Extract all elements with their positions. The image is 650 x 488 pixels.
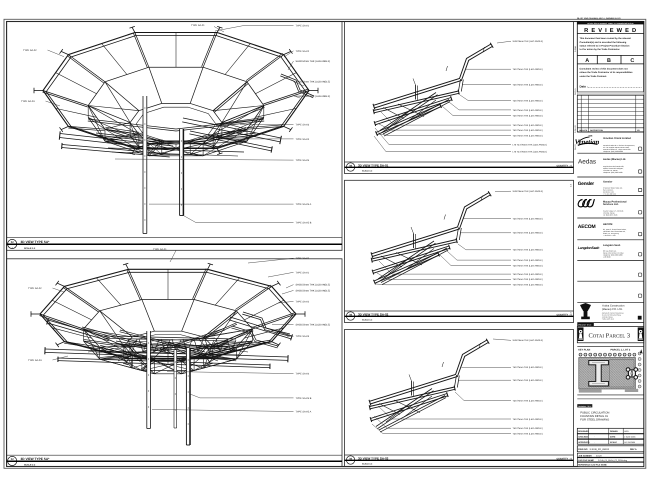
svg-text:1-AUG-2016: 1-AUG-2016 <box>624 435 636 438</box>
svg-text:TYPE SA-02: TYPE SA-02 <box>28 287 42 290</box>
svg-text:SHS/75mm THK (L&G ANGLE): SHS/75mm THK (L&G ANGLE) <box>513 40 544 43</box>
svg-text:T&T/75mm THK (L&G ANGLE): T&T/75mm THK (L&G ANGLE) <box>513 284 543 287</box>
svg-text:This document has been revised: This document has been revised by the re… <box>580 37 632 40</box>
svg-text:S&T-01: S&T-01 <box>574 87 577 95</box>
svg-text:DRAWING TITLE: DRAWING TITLE <box>578 405 592 408</box>
svg-text:3-SUB_FD_85494_P3_3D3M.dwg: 3-SUB_FD_85494_P3_3D3M.dwg <box>598 459 627 462</box>
svg-text:3D VIEW TYPE SA*: 3D VIEW TYPE SA* <box>21 457 51 461</box>
svg-text:TYPE SA-02: TYPE SA-02 <box>296 300 310 303</box>
svg-text:T&T/75mm THK (L&G ANGLE): T&T/75mm THK (L&G ANGLE) <box>513 259 543 262</box>
svg-text:TYPE SA-01: TYPE SA-01 <box>296 271 310 274</box>
svg-text:AECOM: AECOM <box>578 224 596 230</box>
svg-text:TYPE SA-02: TYPE SA-02 <box>296 257 310 260</box>
svg-text:3D VIEW TYPE SA-03: 3D VIEW TYPE SA-03 <box>358 457 389 461</box>
svg-text:TYPE SA-03: TYPE SA-03 <box>21 100 35 103</box>
svg-text:B: B <box>607 58 611 64</box>
svg-text:FOUNTAIN DETAIL 01: FOUNTAIN DETAIL 01 <box>580 415 608 418</box>
svg-text:SHS/75mm THK (L&G ANGLE): SHS/75mm THK (L&G ANGLE) <box>513 339 544 342</box>
svg-text:T&T/75mm THK (L&G ANGLE): T&T/75mm THK (L&G ANGLE) <box>513 134 543 137</box>
svg-text:QUANTITY : 4: QUANTITY : 4 <box>556 165 572 168</box>
svg-text:QUANTITY : 4: QUANTITY : 4 <box>556 458 572 461</box>
svg-text:T&T/75mm THK (L&G ANGLE): T&T/75mm THK (L&G ANGLE) <box>513 427 543 430</box>
svg-text:under the Trade Contract.: under the Trade Contract. <box>580 75 608 78</box>
svg-text:REV A: REV A <box>630 448 637 451</box>
svg-text:DESIGNED: DESIGNED <box>578 430 589 433</box>
svg-text:T&T/75mm THK (L&G ANGLE): T&T/75mm THK (L&G ANGLE) <box>513 217 543 220</box>
svg-text:TYPE SA-04: TYPE SA-04 <box>296 373 310 376</box>
svg-text:CHECKED: CHECKED <box>578 435 588 438</box>
svg-text:SHS/150mm THK (L&G ANGLE): SHS/150mm THK (L&G ANGLE) <box>296 95 331 98</box>
svg-text:Aedas: Aedas <box>578 159 596 166</box>
svg-text:Date :: Date : <box>580 84 588 88</box>
svg-text:5.4 for action by the Trade Co: 5.4 for action by the Trade Contractor. <box>580 48 621 51</box>
svg-text:T&T/75mm THK (L&G ANGLE): T&T/75mm THK (L&G ANGLE) <box>513 83 543 86</box>
svg-text:TYPE SA-05: TYPE SA-05 <box>296 159 310 162</box>
svg-text:R E V I E W E D: R E V I E W E D <box>584 28 637 34</box>
svg-text:Langdon Seah: Langdon Seah <box>603 244 621 247</box>
svg-text:SCALE: SCALE <box>610 441 617 444</box>
svg-text:TYPE SA-03: TYPE SA-03 <box>296 123 310 126</box>
svg-text:T&T/75mm THK (L&G ANGLE): T&T/75mm THK (L&G ANGLE) <box>513 418 543 421</box>
svg-text:SHS/150mm THK (L&G ANGLE): SHS/150mm THK (L&G ANGLE) <box>296 323 331 326</box>
svg-text:LWO: LWO <box>624 430 629 433</box>
svg-text:TYPE SA-01: TYPE SA-01 <box>296 24 310 27</box>
svg-text:31528: 31528 <box>596 454 602 457</box>
svg-text:L75 T&T/75mm THK (L&G ANGLE): L75 T&T/75mm THK (L&G ANGLE) <box>513 151 548 154</box>
svg-text:KEY PLAN: KEY PLAN <box>578 349 590 352</box>
svg-text:3D VIEW TYPE SA*: 3D VIEW TYPE SA* <box>21 240 51 244</box>
svg-text:T&T/75mm THK (L&G ANGLE): T&T/75mm THK (L&G ANGLE) <box>513 379 543 382</box>
svg-text:AS SHOWN: AS SHOWN <box>624 441 635 444</box>
svg-text:A: A <box>585 58 589 64</box>
svg-text:DATE: DATE <box>582 129 588 132</box>
svg-text:3D VIEW TYPE SA-02: 3D VIEW TYPE SA-02 <box>358 313 389 317</box>
svg-text:(Macau) CO. LTD.: (Macau) CO. LTD. <box>602 308 623 311</box>
svg-text:TYPE SA-01: TYPE SA-01 <box>153 248 167 251</box>
svg-text:T&T/75mm THK (L&G ANGLE): T&T/75mm THK (L&G ANGLE) <box>513 366 543 369</box>
svg-text:DESCRIPTION: DESCRIPTION <box>590 129 604 132</box>
svg-text:T&T/75mm THK (L&G ANGLE): T&T/75mm THK (L&G ANGLE) <box>513 115 543 118</box>
svg-text:Services Ltd.: Services Ltd. <box>603 203 619 206</box>
svg-text:PUBLIC CIRCULATION: PUBLIC CIRCULATION <box>580 411 609 414</box>
svg-text:3D VIEW TYPE SA-01: 3D VIEW TYPE SA-01 <box>358 164 389 168</box>
svg-text:T&T/75mm THK (L&G ANGLE): T&T/75mm THK (L&G ANGLE) <box>513 68 543 71</box>
svg-text:Consultant review of this docu: Consultant review of this document does … <box>580 68 628 71</box>
svg-text:SCALE 1:2: SCALE 1:2 <box>24 464 36 467</box>
svg-text:SCALE 1:2: SCALE 1:2 <box>362 170 373 173</box>
svg-text:SHS/150mm THK (L&G ANGLE): SHS/150mm THK (L&G ANGLE) <box>296 60 331 63</box>
svg-text:T&T/75mm THK (L&G ANGLE): T&T/75mm THK (L&G ANGLE) <box>513 99 543 102</box>
svg-text:S-FAB: S-FAB <box>574 46 577 52</box>
svg-text:COTAI PARCEL 3: COTAI PARCEL 3 <box>589 332 631 339</box>
svg-text:DATE: DATE <box>610 435 616 438</box>
svg-text:T&T/75mm THK (L&G ANGLE): T&T/75mm THK (L&G ANGLE) <box>513 399 543 402</box>
svg-text:Consultant(s) and is accorded: Consultant(s) and is accorded the follow… <box>580 41 627 44</box>
svg-text:TYPE SA-05 B: TYPE SA-05 B <box>296 397 312 400</box>
svg-text:Venetian Orient Limited: Venetian Orient Limited <box>603 137 631 140</box>
svg-text:TYPE SA-02: TYPE SA-02 <box>296 50 310 53</box>
svg-text:28 APT 5342 (PHARMA) 4957 A; 3: 28 APT 5342 (PHARMA) 4957 A; 34034856 IN… <box>577 17 620 20</box>
svg-text:TYPE SA-05 A: TYPE SA-05 A <box>296 411 312 414</box>
svg-text:FOR STEEL DRAWING: FOR STEEL DRAWING <box>580 419 609 422</box>
svg-text:relieve the Trade Contractor o: relieve the Trade Contractor of its resp… <box>580 71 634 74</box>
svg-text:SCALE 1:2: SCALE 1:2 <box>362 319 373 322</box>
svg-text:TYPE SA-03: TYPE SA-03 <box>296 335 310 338</box>
svg-text:PROJECT TITLE: PROJECT TITLE <box>578 324 592 327</box>
svg-text:3-SUB_FD_85494: 3-SUB_FD_85494 <box>590 448 610 451</box>
svg-text:T&T/75mm THK (L&G ANGLE): T&T/75mm THK (L&G ANGLE) <box>513 129 543 132</box>
svg-text:TYPE SA-01: TYPE SA-01 <box>191 24 205 27</box>
svg-text:T&T/75mm THK (L&G ANGLE): T&T/75mm THK (L&G ANGLE) <box>513 109 543 112</box>
svg-text:L75 T&T/75mm THK (L&G ANGLE): L75 T&T/75mm THK (L&G ANGLE) <box>513 144 548 147</box>
svg-text:DRAWN: DRAWN <box>610 430 618 433</box>
svg-text:Gensler: Gensler <box>603 181 612 184</box>
svg-text:T&T/75mm THK (L&G ANGLE): T&T/75mm THK (L&G ANGLE) <box>513 124 543 127</box>
svg-text:Gensler: Gensler <box>578 181 594 187</box>
svg-text:TYPE SA-05 B: TYPE SA-05 B <box>296 222 312 225</box>
svg-text:REFERENCE CAD FILE NAME: REFERENCE CAD FILE NAME <box>578 464 607 467</box>
svg-text:♥♠♣: ♥♠♣ <box>589 135 593 138</box>
svg-text:SHS/150mm THK (L&G ANGLE): SHS/150mm THK (L&G ANGLE) <box>296 289 331 292</box>
svg-text:S-SH-02: S-SH-02 <box>574 124 577 133</box>
svg-text:C: C <box>630 58 634 64</box>
svg-text:APPROVED: APPROVED <box>578 441 590 444</box>
svg-text:status referred to in Project: status referred to in Project Procedure … <box>580 44 631 47</box>
svg-text:SHS/75mm THK (L&G ANGLE): SHS/75mm THK (L&G ANGLE) <box>513 190 544 193</box>
svg-text:SCALE 1:2: SCALE 1:2 <box>362 463 373 466</box>
svg-text:SCALE 1:2: SCALE 1:2 <box>24 247 36 250</box>
svg-text:TYPE SA-04: TYPE SA-04 <box>296 138 310 141</box>
svg-text:Aedas (Macau) Ltd.: Aedas (Macau) Ltd. <box>603 158 626 161</box>
svg-text:AECOM: AECOM <box>603 223 612 226</box>
svg-text:JOB NUMBER: JOB NUMBER <box>578 454 592 457</box>
svg-text:SHS/150mm THK (L&G ANGLE): SHS/150mm THK (L&G ANGLE) <box>296 284 331 287</box>
svg-text:T&T/75mm THK (L&G ANGLE): T&T/75mm THK (L&G ANGLE) <box>513 273 543 276</box>
svg-text:TYPE SA-05 A: TYPE SA-05 A <box>296 203 312 206</box>
svg-text:CAD FILE NAME: CAD FILE NAME <box>578 459 594 462</box>
svg-text:T&T/75mm THK (L&G ANGLE): T&T/75mm THK (L&G ANGLE) <box>513 249 543 252</box>
svg-text:TYPE SA-03: TYPE SA-03 <box>28 359 42 362</box>
svg-text:T&T/75mm THK (L&G ANGLE): T&T/75mm THK (L&G ANGLE) <box>513 433 543 436</box>
svg-text:T&T/75mm THK (L&G ANGLE): T&T/75mm THK (L&G ANGLE) <box>513 232 543 235</box>
svg-text:TYPE SA-02: TYPE SA-02 <box>23 49 37 52</box>
svg-text:DWG NO: DWG NO <box>578 448 588 451</box>
svg-text:PARCEL 1, LOT 2: PARCEL 1, LOT 2 <box>611 349 631 352</box>
svg-text:T&T/75mm THK (L&G ANGLE): T&T/75mm THK (L&G ANGLE) <box>513 265 543 268</box>
svg-text:SHS/150mm THK (L&G ANGLE): SHS/150mm THK (L&G ANGLE) <box>296 81 331 84</box>
svg-text:LangdonSeah: LangdonSeah <box>578 246 600 250</box>
svg-text:T&T/75mm THK (L&G ANGLE): T&T/75mm THK (L&G ANGLE) <box>513 278 543 281</box>
